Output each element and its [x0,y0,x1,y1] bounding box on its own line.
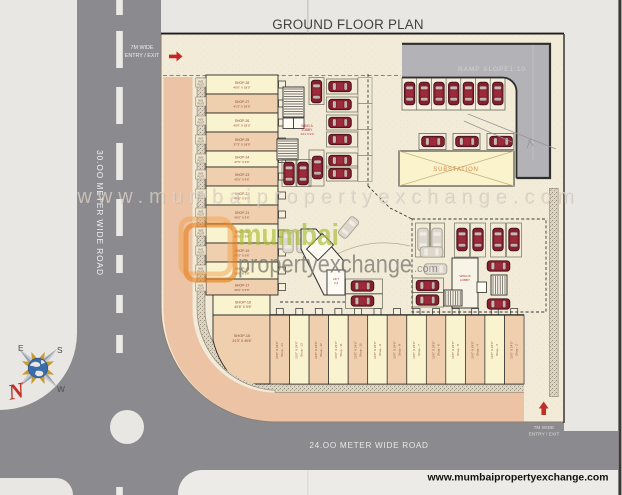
svg-text:www.mumbaipropertyexchange.com: www.mumbaipropertyexchange.com [427,473,609,484]
svg-text:SHOP-24: SHOP-24 [235,156,250,160]
svg-text:40’0" X 18’0": 40’0" X 18’0" [233,86,250,90]
svg-text:7M WIDE: 7M WIDE [130,45,153,51]
svg-text:10’0" X 24’0": 10’0" X 24’0" [373,341,377,359]
svg-text:10’0" X 24’0": 10’0" X 24’0" [510,341,514,359]
svg-text:10’0" X 24’0": 10’0" X 24’0" [334,341,338,359]
svg-text:SHOP-21: SHOP-21 [235,211,250,215]
svg-text:37’5" X 9’6": 37’5" X 9’6" [234,160,249,164]
svg-text:10’0" X 24’0": 10’0" X 24’0" [490,341,494,359]
svg-text:30.OO METER WIDE ROAD: 30.OO METER WIDE ROAD [95,150,105,276]
svg-text:SHOP-17: SHOP-17 [235,284,250,288]
svg-text:Shop - 14: Shop - 14 [280,343,284,357]
svg-text:10’0" X 24’0": 10’0" X 24’0" [471,341,475,359]
svg-text:S: S [57,345,63,355]
svg-text:ENTRY / EXIT: ENTRY / EXIT [529,432,560,438]
svg-text:SUBSTATION: SUBSTATION [433,167,478,173]
svg-text:SHOP-26: SHOP-26 [235,119,250,123]
svg-text:PLNT: PLNT [197,175,204,179]
svg-text:W: W [57,384,65,394]
svg-text:37’3" X 18’0": 37’3" X 18’0" [233,143,250,147]
svg-text:41’3" X 18’0": 41’3" X 18’0" [233,105,250,109]
svg-text:www.mumbaipropertyexchange.com: www.mumbaipropertyexchange.com [76,186,579,208]
svg-text:PLNT: PLNT [197,232,204,236]
svg-text:10’0" X 24’0": 10’0" X 24’0" [412,341,416,359]
svg-text:10’0" X 24’0": 10’0" X 24’0" [392,341,396,359]
svg-text:PLNT: PLNT [197,213,204,217]
svg-text:Shop - 10: Shop - 10 [358,343,362,357]
svg-text:Shop - 4: Shop - 4 [476,344,480,356]
svg-text:43’6" X 9’6": 43’6" X 9’6" [234,178,249,182]
svg-text:24’3" X 49’6": 24’3" X 49’6" [232,339,252,343]
svg-text:SHOP-27: SHOP-27 [235,100,250,104]
svg-text:3,4: 3,4 [334,281,339,285]
svg-text:Shop - 3: Shop - 3 [495,344,499,356]
svg-text:24.OO METER WIDE ROAD: 24.OO METER WIDE ROAD [309,441,428,450]
svg-text:Shop - 9: Shop - 9 [378,344,382,356]
svg-text:ENTRY / EXIT: ENTRY / EXIT [125,53,160,59]
svg-text:PLNT: PLNT [197,102,204,106]
svg-text:10’0" X 24’0": 10’0" X 24’0" [275,341,279,359]
svg-text:PLNT: PLNT [197,83,204,87]
svg-text:40’0" X 9’6": 40’0" X 9’6" [234,288,249,292]
svg-text:SHOP-25: SHOP-25 [235,138,250,142]
svg-text:Shop - 13: Shop - 13 [300,343,304,357]
svg-text:SHOP-23: SHOP-23 [235,173,250,177]
svg-text:PLNT: PLNT [197,121,204,125]
svg-text:PLNT: PLNT [197,140,204,144]
svg-text:GROUND FLOOR PLAN: GROUND FLOOR PLAN [272,17,423,32]
svg-text:LOBBY: LOBBY [460,278,470,282]
svg-text:RAMP SLOPE1:10: RAMP SLOPE1:10 [458,66,526,73]
svg-text:Shop - 12: Shop - 12 [319,343,323,357]
svg-text:40’6" X 9’6": 40’6" X 9’6" [234,305,252,309]
svg-text:.com: .com [414,263,438,275]
svg-text:SHOP-15: SHOP-15 [234,334,250,338]
svg-text:Shop - 8: Shop - 8 [397,344,401,356]
svg-text:PLNT: PLNT [197,251,204,255]
svg-text:Shop - 11: Shop - 11 [339,343,343,356]
svg-text:10’0" X 24’0": 10’0" X 24’0" [353,341,357,359]
svg-text:PLNT: PLNT [197,159,204,163]
svg-text:7M WIDE: 7M WIDE [534,425,555,431]
svg-text:14’1 X 9’6: 14’1 X 9’6 [300,132,314,136]
svg-text:10’0" X 24’0": 10’0" X 24’0" [451,341,455,359]
svg-text:PLNT: PLNT [197,287,204,291]
svg-text:SHOP-16: SHOP-16 [235,301,251,305]
svg-text:SHOP-28: SHOP-28 [235,81,250,85]
svg-text:Shop - 6: Shop - 6 [437,344,441,356]
svg-text:mumbai: mumbai [238,217,339,252]
svg-text:10’0" X 24’0": 10’0" X 24’0" [432,341,436,359]
svg-text:40’0" X 18’0": 40’0" X 18’0" [233,124,250,128]
svg-text:propertyexchange: propertyexchange [238,251,412,279]
svg-text:Shop - 2: Shop - 2 [515,344,519,356]
svg-text:10’0" X 24’0": 10’0" X 24’0" [295,341,299,359]
svg-text:10’0" X 24’0": 10’0" X 24’0" [314,341,318,359]
svg-text:E: E [18,343,24,353]
svg-text:Shop - 7: Shop - 7 [417,344,421,356]
svg-text:Shop - 5: Shop - 5 [456,344,460,356]
